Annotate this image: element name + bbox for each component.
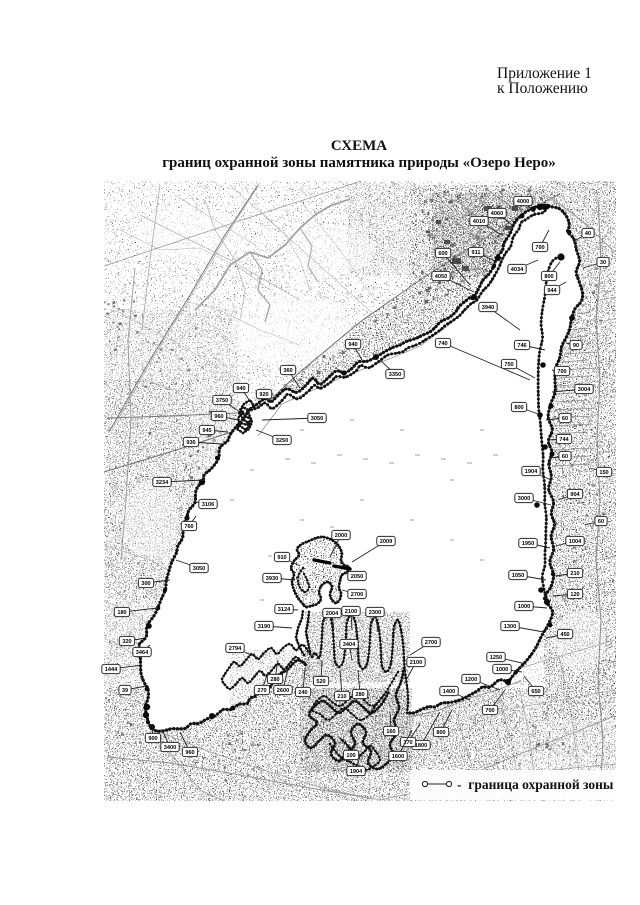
svg-text:1600: 1600 bbox=[392, 754, 404, 760]
svg-text:600: 600 bbox=[438, 251, 447, 257]
svg-text:3350: 3350 bbox=[389, 372, 401, 378]
svg-text:700: 700 bbox=[535, 245, 544, 251]
svg-text:2600: 2600 bbox=[277, 688, 289, 694]
svg-text:944: 944 bbox=[547, 288, 557, 294]
svg-text:744: 744 bbox=[559, 437, 569, 443]
svg-text:1000: 1000 bbox=[496, 667, 508, 673]
svg-text:3050: 3050 bbox=[311, 416, 323, 422]
svg-text:90: 90 bbox=[573, 343, 579, 349]
svg-text:700: 700 bbox=[485, 708, 494, 714]
svg-text:1904: 1904 bbox=[525, 469, 538, 475]
svg-text:800: 800 bbox=[436, 730, 445, 736]
svg-text:700: 700 bbox=[557, 369, 566, 375]
svg-text:3106: 3106 bbox=[202, 502, 214, 508]
svg-text:1300: 1300 bbox=[504, 624, 516, 630]
svg-text:940: 940 bbox=[236, 386, 245, 392]
svg-text:940: 940 bbox=[348, 342, 357, 348]
svg-text:30: 30 bbox=[600, 260, 606, 266]
svg-text:2004: 2004 bbox=[326, 611, 339, 617]
svg-text:3234: 3234 bbox=[156, 480, 169, 486]
svg-text:210: 210 bbox=[337, 694, 346, 700]
svg-text:- граница охранной зоны: - граница охранной зоны bbox=[457, 777, 614, 792]
svg-text:3004: 3004 bbox=[578, 387, 591, 393]
svg-text:4000: 4000 bbox=[517, 199, 529, 205]
svg-text:2000: 2000 bbox=[335, 533, 347, 539]
svg-text:1400: 1400 bbox=[443, 689, 455, 695]
svg-text:3050: 3050 bbox=[193, 566, 205, 572]
svg-text:800: 800 bbox=[514, 405, 523, 411]
svg-text:120: 120 bbox=[570, 592, 579, 598]
svg-text:3750: 3750 bbox=[216, 398, 228, 404]
svg-text:3250: 3250 bbox=[276, 438, 288, 444]
svg-text:960: 960 bbox=[214, 414, 223, 420]
svg-text:3930: 3930 bbox=[266, 576, 278, 582]
svg-text:60: 60 bbox=[562, 416, 568, 422]
svg-text:4010: 4010 bbox=[473, 219, 485, 225]
svg-text:100: 100 bbox=[346, 753, 355, 759]
svg-text:910: 910 bbox=[277, 555, 286, 561]
svg-text:3000: 3000 bbox=[518, 496, 530, 502]
svg-text:39: 39 bbox=[122, 688, 128, 694]
svg-text:1904: 1904 bbox=[350, 769, 363, 775]
svg-text:2100: 2100 bbox=[345, 609, 357, 615]
svg-text:930: 930 bbox=[186, 440, 195, 446]
svg-text:280: 280 bbox=[355, 692, 364, 698]
svg-text:240: 240 bbox=[298, 690, 307, 696]
svg-text:2700: 2700 bbox=[351, 592, 363, 598]
svg-text:160: 160 bbox=[386, 729, 395, 735]
svg-text:2009: 2009 bbox=[380, 539, 392, 545]
svg-text:2100: 2100 bbox=[410, 660, 422, 666]
svg-text:3940: 3940 bbox=[482, 305, 494, 311]
svg-text:4050: 4050 bbox=[435, 274, 447, 280]
svg-text:740: 740 bbox=[438, 341, 447, 347]
svg-text:3464: 3464 bbox=[136, 650, 149, 656]
svg-text:280: 280 bbox=[270, 677, 279, 683]
svg-text:2300: 2300 bbox=[369, 610, 381, 616]
svg-text:1444: 1444 bbox=[105, 667, 118, 673]
svg-text:2700: 2700 bbox=[425, 640, 437, 646]
svg-text:960: 960 bbox=[185, 750, 194, 756]
svg-text:210: 210 bbox=[570, 571, 579, 577]
svg-text:450: 450 bbox=[560, 632, 569, 638]
svg-text:320: 320 bbox=[122, 639, 131, 645]
svg-text:40: 40 bbox=[585, 231, 591, 237]
svg-text:150: 150 bbox=[599, 470, 608, 476]
svg-text:4034: 4034 bbox=[511, 267, 524, 273]
svg-text:3190: 3190 bbox=[258, 624, 270, 630]
svg-text:270: 270 bbox=[257, 688, 266, 694]
svg-text:3124: 3124 bbox=[278, 607, 291, 613]
svg-text:60: 60 bbox=[598, 519, 604, 525]
svg-text:650: 650 bbox=[531, 689, 540, 695]
svg-text:4060: 4060 bbox=[491, 211, 503, 217]
svg-text:1250: 1250 bbox=[490, 655, 502, 661]
svg-text:1000: 1000 bbox=[518, 604, 530, 610]
svg-text:520: 520 bbox=[316, 679, 325, 685]
svg-text:800: 800 bbox=[544, 274, 553, 280]
svg-text:945: 945 bbox=[202, 428, 211, 434]
svg-text:2050: 2050 bbox=[351, 574, 363, 580]
svg-text:920: 920 bbox=[259, 392, 268, 398]
svg-text:746: 746 bbox=[517, 343, 526, 349]
svg-text:3400: 3400 bbox=[164, 745, 176, 751]
svg-text:360: 360 bbox=[283, 368, 292, 374]
svg-text:300: 300 bbox=[141, 581, 150, 587]
svg-text:3404: 3404 bbox=[343, 642, 356, 648]
svg-text:60: 60 bbox=[562, 454, 568, 460]
svg-text:1950: 1950 bbox=[522, 541, 534, 547]
svg-text:2794: 2794 bbox=[229, 646, 242, 652]
svg-text:1004: 1004 bbox=[569, 539, 582, 545]
svg-text:900: 900 bbox=[148, 736, 157, 742]
svg-text:750: 750 bbox=[504, 362, 513, 368]
svg-text:180: 180 bbox=[117, 610, 126, 616]
svg-text:760: 760 bbox=[184, 524, 193, 530]
svg-text:904: 904 bbox=[570, 492, 580, 498]
svg-text:1800: 1800 bbox=[415, 743, 427, 749]
svg-text:911: 911 bbox=[471, 250, 480, 256]
svg-text:1200: 1200 bbox=[465, 677, 477, 683]
svg-text:1050: 1050 bbox=[512, 573, 524, 579]
